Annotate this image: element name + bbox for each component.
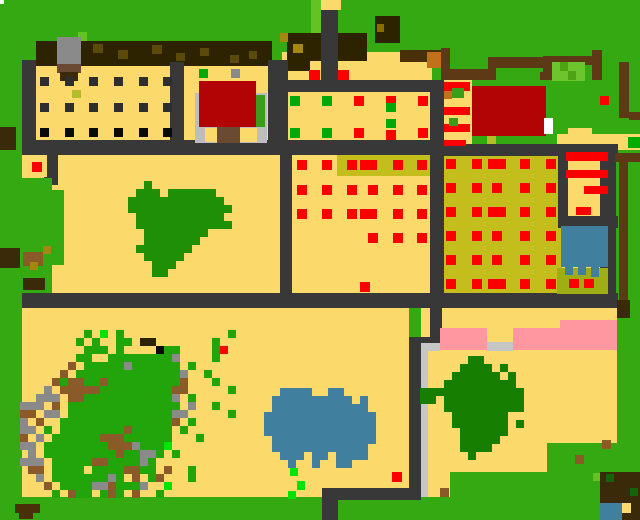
pond: [288, 412, 296, 420]
tree-clump-west: [208, 213, 216, 221]
bush-shade: [560, 62, 568, 71]
forest-thicket: [108, 450, 116, 458]
tree-clump-southeast: [468, 396, 476, 404]
crop-dot-red-wide: [360, 209, 377, 219]
forest-thicket: [84, 346, 92, 354]
forest-thicket: [52, 474, 60, 482]
tree-clump-west: [160, 205, 168, 213]
pond: [312, 420, 320, 428]
forest-thicket: [148, 474, 156, 482]
table-dot: [40, 77, 49, 86]
forest-thicket: [116, 482, 124, 490]
forest-thicket: [180, 378, 188, 386]
crop-dot-red: [472, 279, 482, 289]
forest-thicket: [100, 386, 108, 394]
forest-thicket: [100, 482, 108, 490]
tree-clump-southeast: [484, 372, 492, 380]
crop-dot-red: [546, 279, 556, 289]
log-corner: [15, 504, 40, 513]
tree-clump-west: [176, 197, 184, 205]
crop-dot-red: [492, 183, 502, 193]
forest-thicket: [76, 450, 84, 458]
tree-clump-southeast: [468, 452, 476, 460]
forest-thicket: [108, 426, 116, 434]
table-dot: [114, 77, 123, 86]
pond: [336, 428, 344, 436]
tree-clump-west: [224, 205, 232, 213]
tree-clump-southeast: [484, 444, 492, 452]
forest-thicket: [140, 450, 148, 458]
pond: [328, 428, 336, 436]
forest-thicket: [20, 402, 28, 410]
tree-clump-west: [168, 261, 176, 269]
crop-dot-red: [322, 209, 332, 219]
tree-clump-southeast: [452, 396, 460, 404]
path: [441, 48, 450, 80]
forest-thicket: [76, 482, 84, 490]
tree-clump-west: [128, 197, 136, 205]
crop-dot-red: [472, 183, 482, 193]
forest-thicket: [84, 330, 92, 338]
sand-edge: [487, 342, 513, 351]
forest-thicket: [140, 362, 148, 370]
forest-thicket: [132, 370, 140, 378]
forest-thicket: [76, 426, 84, 434]
tree-clump-southeast: [516, 396, 524, 404]
forest-thicket: [132, 482, 140, 490]
tree-clump-southeast: [468, 364, 476, 372]
forest-thicket: [92, 410, 100, 418]
pond: [360, 428, 368, 436]
forest-thicket: [148, 466, 156, 474]
tree-clump-southeast: [444, 396, 452, 404]
pond: [312, 404, 320, 412]
crop-dot-red: [446, 159, 456, 169]
crop-dot-red: [546, 231, 556, 241]
forest-thicket: [84, 362, 92, 370]
forest-thicket: [124, 362, 132, 370]
forest-thicket: [36, 474, 44, 482]
tree-clump-southeast: [444, 388, 452, 396]
path: [488, 57, 496, 80]
pond: [288, 444, 296, 452]
forest-thicket: [124, 482, 132, 490]
pond: [336, 404, 344, 412]
tree-clump-southeast: [508, 388, 516, 396]
forest-thicket: [20, 434, 28, 442]
tree-clump-southeast: [484, 412, 492, 420]
crop-dot-red: [520, 183, 530, 193]
forest-thicket: [156, 474, 164, 482]
forest-thicket: [100, 330, 108, 338]
forest-thicket: [156, 490, 164, 498]
tree-clump-west: [192, 197, 200, 205]
border-dirt-dark: [0, 248, 20, 268]
pond: [336, 420, 344, 428]
pond: [272, 444, 280, 452]
crop-dot-red: [546, 207, 556, 217]
forest-thicket: [124, 394, 132, 402]
forest-thicket: [164, 402, 172, 410]
game-map-viewport[interactable]: [0, 0, 640, 520]
tree-clump-southeast: [460, 404, 468, 412]
forest-thicket: [44, 394, 52, 402]
tree-clump-west: [184, 197, 192, 205]
tree-clump-southeast: [508, 404, 516, 412]
forest-thicket: [156, 362, 164, 370]
fence: [619, 162, 628, 300]
crop-dot-red: [446, 231, 456, 241]
chimney: [321, 10, 338, 80]
pond: [304, 428, 312, 436]
awning-stripe: [444, 140, 466, 146]
tree-clump-southeast: [492, 412, 500, 420]
table-dot: [89, 103, 98, 112]
forest-thicket: [84, 354, 92, 362]
tree-clump-southeast: [484, 420, 492, 428]
tree-clump-west: [184, 229, 192, 237]
forest-thicket: [68, 434, 76, 442]
forest-thicket: [116, 402, 124, 410]
pond: [352, 452, 360, 460]
forest-thicket: [132, 410, 140, 418]
tree-clump-southeast: [476, 364, 484, 372]
pond: [312, 396, 320, 404]
tree-clump-southeast: [492, 428, 500, 436]
crop-dot-red: [386, 130, 396, 140]
pond: [352, 404, 360, 412]
forest-thicket: [164, 370, 172, 378]
pond: [296, 404, 304, 412]
tree-clump-west: [200, 229, 208, 237]
forest-thicket: [76, 370, 84, 378]
pond: [336, 444, 344, 452]
table-dot: [139, 128, 148, 137]
tree-clump-west: [152, 261, 160, 269]
pond: [288, 460, 296, 468]
forest-thicket: [140, 458, 148, 466]
forest-thicket: [52, 410, 60, 418]
forest-thicket: [116, 378, 124, 386]
pond: [336, 452, 344, 460]
tree-clump-southeast: [428, 396, 436, 404]
table-dot: [139, 103, 148, 112]
pond: [360, 404, 368, 412]
tree-clump-southeast: [460, 444, 468, 452]
tree-clump-west: [136, 221, 144, 229]
tree-clump-southeast: [460, 396, 468, 404]
forest-thicket: [148, 434, 156, 442]
crop-dot-red-wide: [360, 160, 377, 170]
crop-dot-red: [354, 96, 364, 106]
pond: [344, 428, 352, 436]
pond: [360, 412, 368, 420]
forest-thicket: [76, 418, 84, 426]
pond: [280, 428, 288, 436]
pond: [328, 404, 336, 412]
tree-clump-west: [192, 229, 200, 237]
tree-clump-west: [216, 205, 224, 213]
forest-thicket: [76, 442, 84, 450]
forest-thicket: [92, 378, 100, 386]
forest-thicket: [116, 362, 124, 370]
crop-dot-red-wide: [488, 159, 506, 169]
pond: [360, 396, 368, 404]
tree-clump-southeast: [476, 412, 484, 420]
forest-thicket: [100, 490, 108, 498]
pond: [272, 428, 280, 436]
red-item: [600, 96, 609, 105]
tree-clump-west: [168, 197, 176, 205]
forest-thicket: [76, 402, 84, 410]
tree-clump-west: [136, 245, 144, 253]
forest-thicket: [76, 458, 84, 466]
forest-thicket: [20, 418, 28, 426]
crop-dot-red: [472, 159, 482, 169]
pond: [328, 388, 336, 396]
forest-thicket: [172, 346, 180, 354]
pond: [352, 412, 360, 420]
forest-thicket: [52, 466, 60, 474]
forest-thicket: [172, 450, 180, 458]
tree-clump-west: [160, 213, 168, 221]
forest-thicket: [92, 394, 100, 402]
pond: [280, 404, 288, 412]
tree-clump-west: [152, 229, 160, 237]
forest-thicket: [140, 370, 148, 378]
lime-sprout: [297, 481, 305, 490]
forest-thicket: [92, 370, 100, 378]
forest-thicket: [52, 434, 60, 442]
crop-dot-green: [322, 128, 332, 138]
crop-dot-red: [520, 159, 530, 169]
pond: [352, 436, 360, 444]
tree-clump-west: [168, 245, 176, 253]
tree-clump-west: [184, 221, 192, 229]
forest-thicket: [148, 458, 156, 466]
tree-clump-southeast: [460, 388, 468, 396]
forest-thicket: [132, 466, 140, 474]
tree-clump-southeast: [484, 396, 492, 404]
forest-thicket: [68, 458, 76, 466]
shelf-stripe: [576, 207, 591, 215]
crop-dot-red: [393, 209, 403, 219]
tree-clump-west: [160, 269, 168, 277]
pond: [320, 428, 328, 436]
forest-thicket: [140, 410, 148, 418]
forest-thicket: [100, 370, 108, 378]
gray-pixel: [231, 69, 240, 78]
forest-thicket: [84, 418, 92, 426]
forest-thicket: [124, 458, 132, 466]
tree-clump-southeast: [508, 380, 516, 388]
pond: [304, 404, 312, 412]
grass-dot: [450, 490, 459, 499]
forest-thicket: [28, 458, 36, 466]
forest-thicket: [60, 458, 68, 466]
forest-thicket: [84, 458, 92, 466]
forest-thicket: [76, 490, 84, 498]
pond: [360, 436, 368, 444]
forest-thicket: [116, 466, 124, 474]
crop-dot-red: [417, 209, 427, 219]
forest-thicket: [148, 442, 156, 450]
corner-pixel: [0, 0, 4, 4]
table-dot: [89, 128, 98, 137]
tree-clump-west: [176, 253, 184, 261]
crop-dot-red: [418, 128, 428, 138]
crop-dot-red: [393, 185, 403, 195]
forest-thicket: [116, 410, 124, 418]
crop-dot-red: [472, 231, 482, 241]
border-dirt-dark: [23, 278, 45, 290]
forest-thicket: [52, 394, 60, 402]
crop-dot-red: [360, 282, 370, 292]
pond: [368, 420, 376, 428]
tree-clump-southeast: [476, 436, 484, 444]
pond: [320, 396, 328, 404]
crop-dot-green: [322, 96, 332, 106]
table-dot: [139, 77, 148, 86]
forest-thicket: [108, 354, 116, 362]
forest-thicket: [124, 434, 132, 442]
pond: [312, 436, 320, 444]
pond: [296, 436, 304, 444]
forest-thicket: [116, 450, 124, 458]
tree-clump-west: [176, 213, 184, 221]
forest-thicket: [132, 402, 140, 410]
forest-thicket: [172, 386, 180, 394]
forest-thicket: [100, 434, 108, 442]
tree-clump-west: [144, 213, 152, 221]
forest-thicket: [28, 466, 36, 474]
forest-thicket: [156, 354, 164, 362]
table-dot: [65, 77, 74, 86]
crop-dot-red: [584, 279, 594, 288]
forest-thicket: [156, 346, 164, 354]
roof-speck: [118, 50, 128, 59]
forest-thicket: [132, 474, 140, 482]
forest-thicket: [116, 386, 124, 394]
pond: [272, 412, 280, 420]
crop-dot-red: [520, 255, 530, 265]
pond: [344, 436, 352, 444]
roof-speck: [152, 45, 162, 54]
tree-clump-southeast: [484, 380, 492, 388]
tree-clump-southeast: [468, 428, 476, 436]
forest-thicket: [92, 418, 100, 426]
tree-clump-west: [208, 189, 216, 197]
forest-thicket: [116, 394, 124, 402]
tree-clump-west: [184, 205, 192, 213]
tree-clump-west: [160, 197, 168, 205]
forest-thicket: [172, 394, 180, 402]
forest-thicket: [172, 418, 180, 426]
forest-thicket: [172, 354, 180, 362]
pond: [352, 420, 360, 428]
pond: [320, 404, 328, 412]
forest-thicket: [140, 466, 148, 474]
tree-clump-west: [152, 269, 160, 277]
forest-thicket: [20, 458, 28, 466]
forest-thicket: [156, 402, 164, 410]
forest-thicket: [52, 490, 60, 498]
forest-thicket: [28, 442, 36, 450]
tree-clump-west: [192, 189, 200, 197]
forest-thicket: [84, 394, 92, 402]
crop-dot-red: [417, 185, 427, 195]
path: [592, 50, 602, 80]
forest-thicket: [108, 482, 116, 490]
tree-clump-southeast: [492, 380, 500, 388]
crop-dot-red: [446, 255, 456, 265]
barn-door: [544, 118, 553, 134]
crop-dot-red: [347, 185, 357, 195]
tree-clump-southeast: [492, 420, 500, 428]
tree-clump-west: [160, 245, 168, 253]
awning-stripe: [444, 107, 470, 115]
tree-clump-southeast: [500, 428, 508, 436]
pond: [312, 452, 320, 460]
fence: [629, 112, 640, 120]
tree-clump-west: [160, 229, 168, 237]
forest-thicket: [68, 474, 76, 482]
oven-green-strip: [256, 95, 265, 127]
forest-thicket: [92, 386, 100, 394]
forest-thicket: [68, 386, 76, 394]
tree-clump-southeast: [444, 404, 452, 412]
crop-dot-red-wide: [488, 279, 506, 289]
forest-thicket: [92, 482, 100, 490]
tree-clump-southeast: [476, 428, 484, 436]
forest-thicket: [36, 434, 44, 442]
forest-thicket: [212, 346, 220, 354]
forest-thicket: [164, 434, 172, 442]
awning-pixel: [452, 88, 464, 98]
tree-clump-southeast: [460, 372, 468, 380]
forest-thicket: [212, 354, 220, 362]
pond: [288, 396, 296, 404]
forest-thicket: [108, 370, 116, 378]
tree-clump-southeast: [516, 404, 524, 412]
forest-thicket: [140, 338, 148, 346]
olive-field-floor: [444, 155, 562, 293]
forest-thicket: [36, 394, 44, 402]
tree-clump-southeast: [468, 436, 476, 444]
tree-clump-west: [200, 213, 208, 221]
crop-dot-red: [492, 255, 502, 265]
forest-thicket: [100, 346, 108, 354]
pond: [280, 420, 288, 428]
table-dot: [114, 128, 123, 137]
pond: [360, 420, 368, 428]
crop-dot-green: [386, 103, 396, 112]
tree-clump-southeast: [500, 396, 508, 404]
tree-clump-west: [144, 189, 152, 197]
pond: [280, 412, 288, 420]
forest-thicket: [132, 386, 140, 394]
forest-thicket: [92, 474, 100, 482]
tree-clump-west: [144, 205, 152, 213]
forest-thicket: [212, 402, 220, 410]
crop-dot-red: [417, 233, 427, 243]
tree-clump-southeast: [468, 412, 476, 420]
tree-clump-west: [152, 221, 160, 229]
forest-thicket: [100, 378, 108, 386]
pond: [264, 412, 272, 420]
tree-clump-west: [176, 221, 184, 229]
barn-red: [472, 86, 546, 136]
